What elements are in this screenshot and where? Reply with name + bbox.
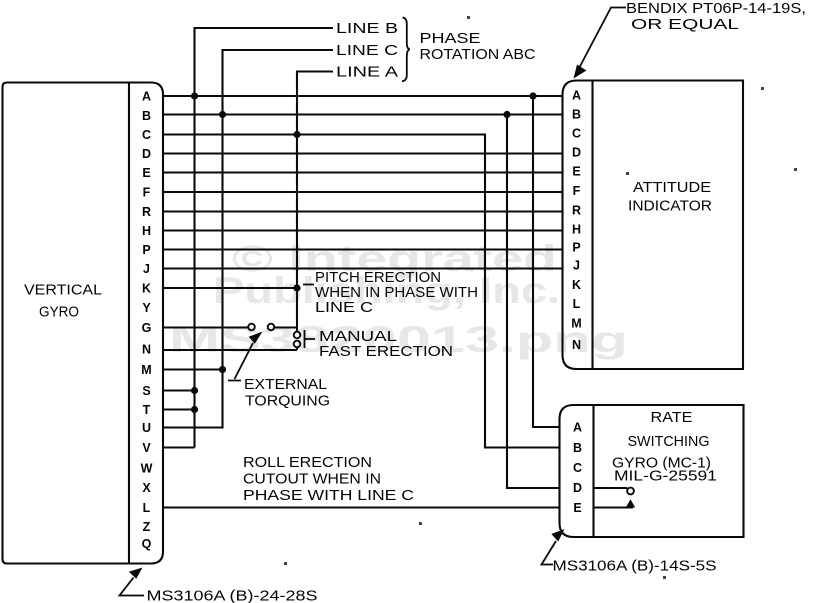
svg-text:MIL-G-25591: MIL-G-25591 (614, 469, 717, 485)
svg-text:G: G (142, 321, 152, 335)
svg-text:MANUAL: MANUAL (319, 329, 397, 345)
svg-text:RATE: RATE (651, 410, 693, 426)
svg-text:P: P (142, 243, 150, 257)
svg-text:FAST ERECTION: FAST ERECTION (319, 344, 453, 360)
svg-text:H: H (572, 223, 581, 237)
svg-text:C: C (573, 461, 582, 475)
svg-text:H: H (142, 224, 151, 238)
svg-text:PHASE: PHASE (420, 31, 481, 47)
svg-text:PHASE WITH LINE C: PHASE WITH LINE C (243, 488, 414, 504)
svg-text:GYRO: GYRO (39, 305, 79, 321)
svg-text:Z: Z (143, 520, 151, 534)
svg-text:OR EQUAL: OR EQUAL (631, 17, 739, 33)
svg-text:Q: Q (142, 537, 152, 551)
svg-text:J: J (143, 262, 150, 276)
svg-text:E: E (142, 166, 150, 180)
svg-text:PITCH ERECTION: PITCH ERECTION (315, 270, 441, 286)
svg-text:C: C (142, 128, 151, 142)
svg-text:R: R (142, 205, 151, 219)
svg-text:A: A (142, 90, 151, 104)
svg-text:SWITCHING: SWITCHING (628, 434, 710, 450)
svg-text:ROTATION ABC: ROTATION ABC (420, 47, 536, 63)
svg-text:P: P (572, 241, 580, 255)
svg-text:WHEN IN PHASE WITH: WHEN IN PHASE WITH (315, 285, 478, 301)
svg-text:F: F (143, 186, 151, 200)
svg-text:A: A (573, 421, 582, 435)
svg-text:C: C (572, 127, 581, 141)
svg-text:L: L (573, 297, 581, 311)
svg-text:T: T (143, 403, 151, 417)
svg-text:LINE A: LINE A (336, 65, 398, 81)
svg-text:B: B (142, 109, 151, 123)
svg-text:M: M (141, 363, 151, 377)
svg-text:CUTOUT WHEN IN: CUTOUT WHEN IN (243, 472, 381, 488)
svg-text:N: N (142, 343, 151, 357)
svg-text:LINE B: LINE B (336, 21, 398, 37)
svg-text:B: B (572, 108, 581, 122)
svg-text:D: D (142, 147, 151, 161)
svg-text:INDICATOR: INDICATOR (628, 199, 712, 215)
svg-text:F: F (573, 184, 581, 198)
svg-text:EXTERNAL: EXTERNAL (244, 377, 327, 393)
svg-text:TORQUING: TORQUING (245, 394, 330, 410)
svg-text:VERTICAL: VERTICAL (24, 283, 102, 299)
svg-text:W: W (141, 462, 153, 476)
svg-text:V: V (142, 441, 151, 455)
svg-text:ATTITUDE: ATTITUDE (633, 180, 711, 196)
svg-text:E: E (573, 501, 581, 515)
svg-text:K: K (572, 278, 581, 292)
svg-text:ROLL ERECTION: ROLL ERECTION (243, 455, 372, 471)
svg-text:D: D (572, 146, 581, 160)
svg-text:K: K (142, 282, 151, 296)
svg-text:N: N (572, 338, 581, 352)
svg-text:S: S (142, 384, 150, 398)
svg-text:B: B (573, 441, 582, 455)
svg-text:A: A (572, 89, 581, 103)
svg-text:U: U (142, 421, 151, 435)
svg-text:M: M (571, 317, 581, 331)
svg-text:J: J (573, 259, 580, 273)
svg-text:LINE C: LINE C (315, 300, 373, 316)
svg-text:LINE C: LINE C (336, 43, 398, 59)
svg-text:BENDIX PT06P-14-19S,: BENDIX PT06P-14-19S, (626, 1, 806, 17)
svg-text:X: X (142, 481, 151, 495)
svg-text:Y: Y (142, 301, 151, 315)
svg-text:E: E (572, 165, 580, 179)
svg-text:D: D (573, 481, 582, 495)
svg-text:MS3106A (B)-14S-5S: MS3106A (B)-14S-5S (553, 559, 717, 575)
svg-text:R: R (572, 204, 581, 218)
svg-text:L: L (143, 501, 151, 515)
svg-text:MS3106A (B)-24-28S: MS3106A (B)-24-28S (147, 589, 318, 603)
